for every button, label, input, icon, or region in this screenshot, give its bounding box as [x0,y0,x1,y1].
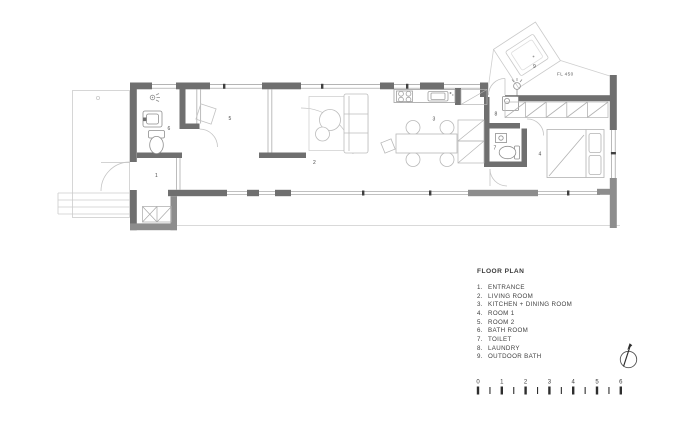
kitchen-fixtures [394,90,455,103]
room-label-living: 2 [313,160,316,166]
floor-level-label: FL 450 [557,72,574,77]
bathroom-fixtures [143,94,165,154]
room-label-bathroom: 6 [168,126,171,132]
storage-hatch [458,90,487,164]
legend-item-entrance: 1.ENTRANCE [477,284,572,293]
north-arrow-icon [620,343,636,367]
legend: FLOOR PLAN 1.ENTRANCE 2.LIVING ROOM 3.KI… [477,268,572,362]
room2-furniture [196,104,216,124]
sliding-partitions [177,90,272,191]
legend-items: 1.ENTRANCE 2.LIVING ROOM 3.KITCHEN + DIN… [477,284,572,362]
svg-text:5: 5 [595,380,599,386]
legend-item-toilet: 7.TOILET [477,336,572,345]
room-label-kitchen: 3 [433,117,436,123]
floor-plan-drawing: 1 2 3 4 5 6 7 8 9 FL 450 0 1 2 3 4 5 6 [0,0,700,437]
outdoor-bath [488,22,610,97]
svg-text:1: 1 [500,380,504,386]
room-label-entrance: 1 [155,173,158,179]
svg-text:2: 2 [524,380,528,386]
floor-plan-page: 1 2 3 4 5 6 7 8 9 FL 450 0 1 2 3 4 5 6 [0,0,700,437]
legend-item-outdoor-bath: 9.OUTDOOR BATH [477,353,572,362]
legend-item-room2: 5.ROOM 2 [477,319,572,328]
exterior-walls [130,75,617,230]
scale-bar: 0 1 2 3 4 5 6 [476,380,623,395]
legend-item-room1: 4.ROOM 1 [477,310,572,319]
legend-item-laundry: 8.LAUNDRY [477,345,572,354]
dining-set [381,121,457,167]
room-label-toilet: 7 [494,146,497,152]
living-room-furniture [309,94,368,153]
legend-title: FLOOR PLAN [477,268,572,275]
entrance-closet [143,207,172,223]
svg-text:3: 3 [548,380,552,386]
room-label-room1: 4 [539,152,542,158]
svg-text:0: 0 [476,380,480,386]
svg-text:4: 4 [572,380,576,386]
room-label-laundry: 8 [495,112,498,118]
legend-item-living-room: 2.LIVING ROOM [477,293,572,302]
legend-item-bath-room: 6.BATH ROOM [477,327,572,336]
exterior-walls-secondary [130,178,617,230]
room-label-room2: 5 [229,116,232,122]
svg-text:6: 6 [619,380,623,386]
room-label-outdoor-bath: 9 [533,64,536,70]
legend-item-kitchen-dining: 3.KITCHEN + DINING ROOM [477,301,572,310]
